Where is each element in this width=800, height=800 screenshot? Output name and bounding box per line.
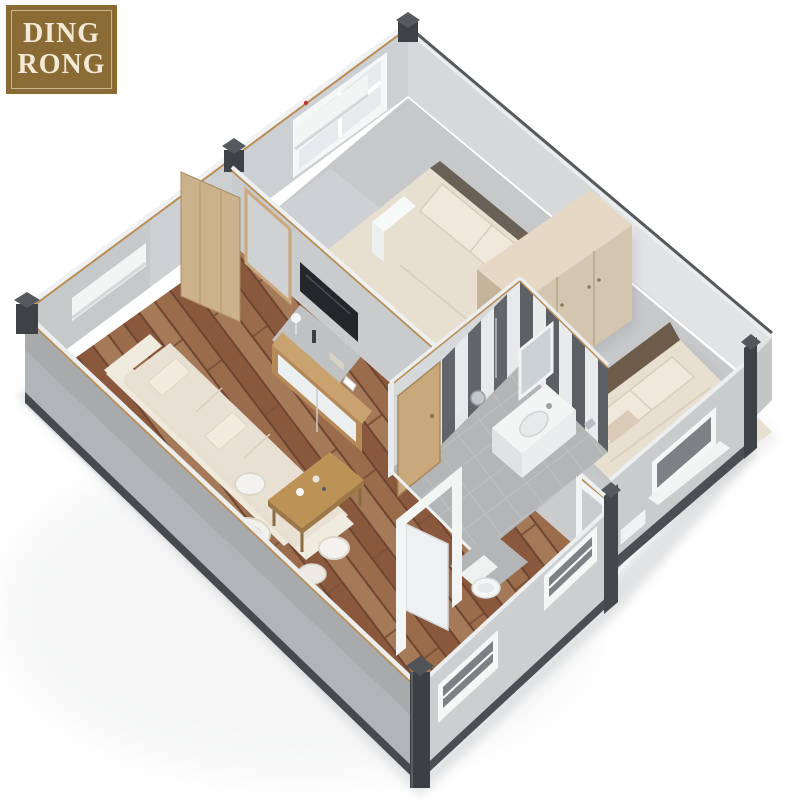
coffee-table-top [222, 518, 270, 550]
tv-reflection [306, 275, 350, 314]
front-window-2 [544, 526, 597, 611]
bathroom-floor [390, 365, 608, 557]
nightstand-front [372, 222, 384, 262]
coffee-table-ring [231, 525, 261, 543]
vanity-front-left [492, 428, 522, 478]
back-left-wall-shade [25, 220, 150, 380]
sofa-armrest [294, 512, 354, 560]
tv-cabinet [272, 313, 372, 452]
post-body [398, 20, 418, 42]
post-body [744, 337, 757, 459]
front-walls [406, 334, 761, 788]
bed-mattress [285, 168, 545, 378]
dining-chair [319, 537, 349, 559]
sofa-back-front [124, 360, 302, 556]
corner-post-front [406, 656, 434, 788]
duvet-fold [632, 416, 732, 492]
bathroom-corner-edge [388, 380, 394, 478]
sofa-seat [124, 343, 348, 550]
front-wall-b-top [610, 359, 750, 480]
back-right-wall [408, 26, 772, 398]
duvet-fold [610, 388, 710, 462]
hand-shower [584, 418, 596, 430]
table-lamp [291, 313, 301, 323]
corner-post-left [14, 292, 40, 334]
wardrobe-shadow [523, 231, 636, 405]
window-mullion-h [299, 82, 381, 148]
bed-shadow [291, 176, 551, 384]
window-glass [549, 537, 592, 597]
window-frame [293, 52, 387, 178]
bedroom1-window [293, 52, 387, 178]
tv-screen [300, 262, 358, 342]
bathroom-nw-stripes [440, 281, 520, 446]
mirror [520, 324, 552, 398]
wardrobe-doors [519, 225, 632, 399]
left-wall-shade [25, 316, 418, 722]
tv-wall-face [232, 170, 612, 578]
left-wall-top-face [25, 313, 418, 685]
bathroom-wall-trim [390, 281, 520, 386]
door-handle [430, 414, 434, 418]
wardrobe-handle [597, 278, 601, 282]
door-header [396, 466, 462, 532]
bedroom1-doorway [246, 190, 290, 302]
window-mullion [549, 547, 592, 588]
pillow [630, 357, 694, 410]
sofa-armrest [104, 334, 162, 382]
left-wall-face [25, 316, 418, 782]
window-frame [438, 630, 498, 723]
bedroom2-bed [550, 322, 778, 528]
back-right-wall-light [600, 190, 772, 398]
bedroom1-floor-highlight [240, 168, 420, 312]
dining-table [268, 452, 364, 552]
right-end-wall [748, 338, 772, 424]
ac-body [295, 74, 368, 152]
window-frame [544, 526, 597, 611]
floors [64, 98, 770, 770]
back-right-wall-face [408, 28, 772, 398]
left-wall-base-rail [25, 392, 418, 784]
table-edge [302, 480, 364, 534]
sofa-pillow [148, 358, 190, 396]
back-right-wall-top-face [408, 31, 772, 338]
sofa-back-top [106, 360, 302, 546]
door-jamb [602, 495, 608, 583]
front-wall-b-rail [610, 441, 750, 574]
ground-shadow-wide [0, 440, 600, 780]
ac-vent [72, 263, 146, 318]
front-window-1 [438, 630, 498, 723]
bedroom2-doorframe [576, 473, 608, 583]
dining-chair [235, 473, 265, 495]
sofa-shadow [130, 357, 352, 562]
sofa [104, 334, 354, 562]
tv-wall-top-face [232, 167, 612, 502]
wardrobe-side [477, 269, 519, 399]
front-wall-a-lip [418, 604, 612, 784]
toilet-seat [478, 583, 494, 593]
basin [515, 406, 553, 441]
sofa-pillow [205, 412, 247, 450]
door-opening [582, 482, 602, 576]
toilet-tank [460, 555, 498, 586]
faucet [546, 403, 552, 409]
bottle [322, 487, 326, 491]
seat-seam [196, 388, 222, 412]
bowl [296, 488, 304, 496]
brand-logo: DING RONG [6, 5, 117, 94]
corner-post-joint-front [601, 482, 621, 614]
vanity-top [492, 384, 576, 454]
back-right-wall-rail [408, 26, 772, 333]
wardrobe-handle [550, 310, 554, 314]
left-wall-base-lip [25, 404, 418, 784]
coffee-table [222, 518, 270, 550]
cabinet-drawers [278, 354, 356, 442]
open-door-leaf [181, 172, 240, 322]
bowl [313, 476, 320, 483]
bed-headboard [550, 322, 680, 430]
corner-post-right [741, 334, 761, 459]
wardrobe-handle [587, 285, 591, 289]
door-jamb [452, 468, 462, 608]
render-canvas: DING RONG [0, 0, 800, 800]
hall-doorframe [396, 466, 462, 656]
bathroom [388, 278, 608, 598]
ground-shadow [0, 388, 756, 796]
post-cap [406, 656, 434, 676]
bed-headboard [430, 161, 555, 262]
door-header [576, 476, 608, 510]
ground-shadow-edge [18, 388, 756, 796]
open-white-door [406, 524, 448, 630]
bathroom-nw-wall [390, 281, 520, 470]
post-body [16, 304, 38, 334]
brand-logo-border: DING RONG [11, 10, 112, 89]
cabinet-body [272, 345, 362, 452]
brand-logo-line2: RONG [18, 50, 106, 80]
tv-wall-trim [232, 171, 612, 506]
toilet-bowl [472, 578, 500, 598]
door-jamb [396, 514, 406, 656]
cabinet-top [272, 332, 372, 424]
front-wall-a-face [418, 508, 612, 782]
bathroom-door [398, 362, 440, 496]
window-glass [299, 60, 381, 170]
bathroom-wall-top [520, 278, 608, 365]
container-house-render [0, 0, 800, 800]
window-mullion [443, 652, 493, 698]
shower-head [471, 391, 485, 405]
post-body [410, 672, 430, 788]
table-edge [268, 500, 302, 534]
bed-shadow [566, 346, 778, 528]
corner-post-top [396, 12, 420, 42]
post-body [224, 150, 244, 172]
wardrobe-top [477, 190, 632, 304]
ac-unit-bedroom1 [295, 74, 368, 152]
living-room [104, 334, 364, 584]
bedroom2-window [648, 407, 730, 505]
front-slit-window [620, 508, 646, 546]
vase [312, 330, 316, 343]
smoke-detector-dot [304, 101, 308, 105]
post-cap [601, 482, 621, 498]
post-cap [222, 138, 246, 154]
window-sill [648, 441, 730, 505]
books [330, 352, 344, 371]
post-cap [14, 292, 40, 308]
left-wall-trim [25, 317, 418, 689]
bedroom1-bed [272, 161, 555, 390]
vanity-front-right [522, 410, 576, 478]
front-wall-a-rail [418, 592, 612, 784]
duvet-fold [400, 265, 505, 350]
cushion [600, 410, 640, 443]
window-frame [652, 407, 716, 499]
toilet [450, 532, 528, 598]
left-wall [25, 313, 418, 784]
ac-unit-living [72, 243, 146, 321]
wood-floor [64, 245, 614, 770]
post-cap [396, 12, 420, 28]
wardrobe-handle [560, 303, 564, 307]
bathroom-ne-wall [520, 281, 608, 452]
bedroom-floor [236, 98, 770, 576]
threshold [390, 470, 478, 557]
front-wall-b-face [610, 360, 750, 574]
pillow [470, 225, 542, 293]
toilet-mat [450, 532, 528, 596]
pillow [585, 390, 652, 445]
bed-mattress [560, 340, 772, 522]
ac-vent [295, 95, 368, 149]
wicker-stool [298, 564, 326, 584]
window-glass [657, 417, 711, 488]
bed-foot-rug [272, 305, 362, 390]
brand-logo-line1: DING [23, 19, 100, 49]
photo-frame [343, 376, 356, 391]
duvet-fold [368, 292, 470, 375]
window-glass [443, 641, 493, 708]
sink-vanity [492, 384, 576, 478]
seat-seam [244, 434, 270, 458]
door-jamb [576, 473, 582, 563]
post-body [604, 484, 618, 614]
table-top [268, 452, 364, 528]
front-wall-a-top [418, 506, 612, 686]
tv-wall [181, 167, 612, 578]
bathroom-wall-trim [520, 281, 608, 368]
ac-body [72, 243, 146, 321]
corner-post-joint-back [222, 138, 246, 172]
nightstand-top [372, 196, 416, 232]
pillow [420, 184, 492, 252]
bathroom-wall-top [390, 278, 520, 383]
post-cap [741, 334, 761, 350]
wardrobe [477, 190, 636, 405]
